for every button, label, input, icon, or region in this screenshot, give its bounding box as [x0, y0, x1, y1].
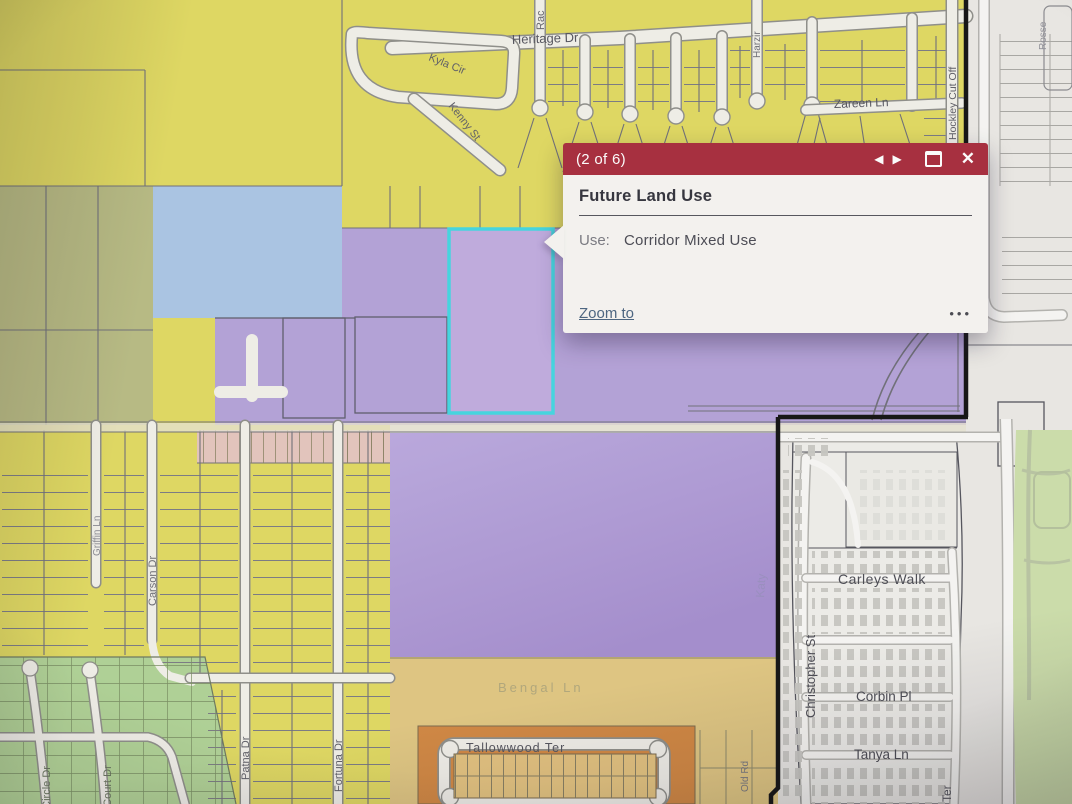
popup-body: Future Land Use Use: Corridor Mixed Use …	[563, 175, 988, 333]
maximize-icon	[925, 151, 942, 167]
maximize-button[interactable]	[925, 151, 942, 167]
street-label-heritage: Heritage Dr	[512, 30, 580, 47]
street-label-fortuna: Fortuna Dr	[333, 739, 345, 792]
street-label-circle: e Circle Dr	[41, 766, 53, 804]
street-label-katy: Katy	[753, 573, 769, 598]
popup-pagination: (2 of 6)	[576, 151, 626, 168]
attribute-row: Use: Corridor Mixed Use	[579, 232, 972, 249]
street-label-hockley: Hockley Cut Off	[947, 67, 959, 140]
street-label-patna: Patna Dr	[240, 736, 252, 780]
street-label-rac: Rac	[535, 10, 547, 30]
basemap-bottom-right	[780, 418, 1072, 804]
street-label-carleys: Carleys Walk	[838, 571, 926, 587]
street-label-christopher: Christopher St	[803, 635, 818, 718]
use-field-value: Corridor Mixed Use	[624, 232, 757, 249]
popup-header: (2 of 6) ◀ ▶ ✕	[563, 143, 988, 175]
popup-divider	[579, 215, 972, 216]
more-options-button[interactable]: •••	[949, 306, 972, 321]
green-subdivision	[0, 657, 240, 804]
popup-tail	[544, 225, 564, 259]
feature-popup: (2 of 6) ◀ ▶ ✕ Future Land Use Use: Corr…	[563, 143, 988, 333]
map-canvas[interactable]: Heritage Dr Rac Kyla Cir Kenny St Harzir…	[0, 0, 1072, 804]
street-label-ter: Ter	[940, 785, 954, 802]
selected-parcel[interactable]	[449, 229, 553, 413]
street-label-corbin: Corbin Pl	[856, 689, 912, 704]
zoom-to-link[interactable]: Zoom to	[579, 305, 634, 322]
street-label-carson: Carson Dr	[147, 556, 159, 606]
close-button[interactable]: ✕	[961, 149, 975, 169]
next-feature-button[interactable]: ▶	[893, 152, 902, 166]
popup-footer: Zoom to •••	[579, 305, 972, 322]
use-field-label: Use:	[579, 232, 610, 249]
street-label-griffin: Griffin Ln	[92, 516, 103, 556]
street-label-tanya: Tanya Ln	[854, 747, 909, 762]
street-label-tallowwood: Tallowwood Ter	[466, 741, 565, 755]
street-label-old-rd: Old Rd	[740, 761, 751, 792]
popup-title: Future Land Use	[579, 187, 972, 206]
street-label-bengal: Bengal Ln	[498, 680, 584, 695]
previous-feature-button[interactable]: ◀	[874, 152, 883, 166]
street-label-court: e Court Dr	[102, 765, 114, 804]
street-label-rosse: Rosse	[1038, 21, 1049, 50]
street-label-zareen: Zareen Ln	[834, 95, 889, 111]
map-screen: Heritage Dr Rac Kyla Cir Kenny St Harzir…	[0, 0, 1072, 804]
street-label-harzir: Harzir	[752, 31, 763, 58]
